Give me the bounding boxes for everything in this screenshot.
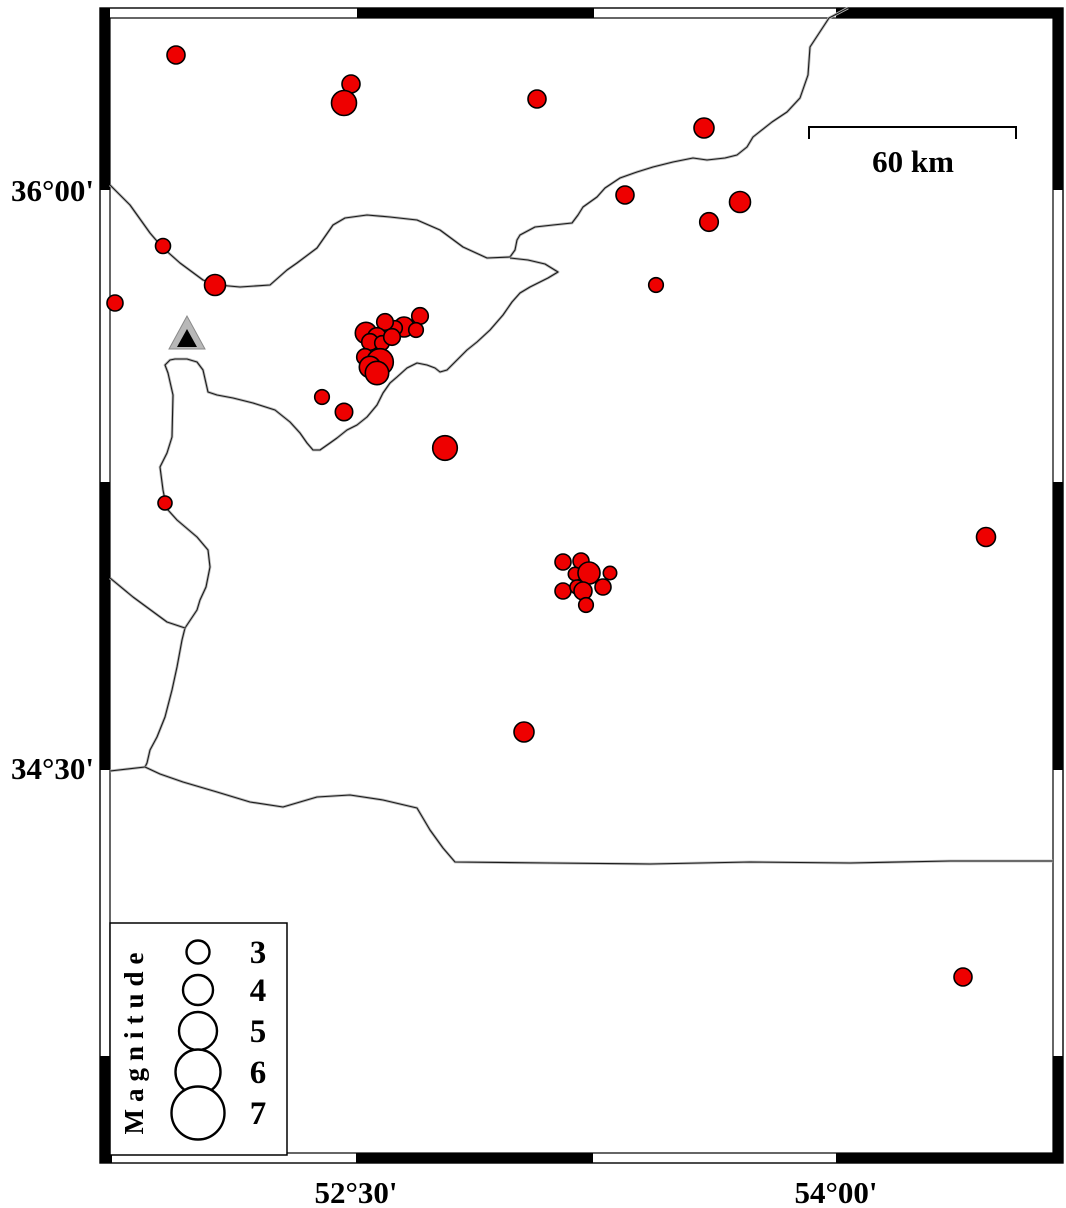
earthquake-marker	[603, 566, 616, 579]
frame-segment-left	[100, 8, 110, 190]
legend-circle-mag-4	[183, 975, 213, 1005]
earthquake-marker	[700, 213, 719, 232]
legend-value-mag-3: 3	[250, 935, 267, 971]
earthquake-marker	[579, 598, 594, 613]
earthquake-marker	[156, 239, 171, 254]
frame-segment-top	[836, 8, 1063, 18]
frame-segment-right	[1053, 482, 1063, 770]
earthquake-marker	[694, 118, 714, 138]
frame-segment-top	[357, 8, 594, 18]
earthquake-marker	[595, 579, 611, 595]
seismicity-map: 60 km Magnitude 34567 36°00'34°30'52°30'…	[0, 0, 1066, 1208]
frame-segment-right	[1053, 1056, 1063, 1163]
earthquake-marker	[384, 329, 401, 346]
earthquake-marker	[315, 390, 330, 405]
earthquake-marker	[332, 91, 357, 116]
earthquake-marker	[335, 403, 352, 420]
earthquake-marker	[514, 722, 534, 742]
earthquake-marker	[409, 323, 424, 338]
legend-title: Magnitude	[119, 945, 149, 1134]
earthquake-marker	[365, 361, 388, 384]
earthquake-marker	[107, 295, 123, 311]
legend-value-mag-4: 4	[250, 973, 267, 1009]
earthquake-marker	[412, 308, 429, 325]
longitude-label: 54°00'	[794, 1175, 877, 1208]
earthquake-marker	[616, 186, 634, 204]
earthquake-marker	[205, 275, 226, 296]
earthquake-marker	[433, 436, 458, 461]
earthquake-marker	[730, 192, 751, 213]
latitude-label: 36°00'	[11, 173, 94, 208]
legend-value-mag-5: 5	[250, 1014, 267, 1050]
frame-segment-bottom	[356, 1153, 593, 1163]
longitude-label: 52°30'	[314, 1175, 397, 1208]
legend-value-mag-7: 7	[250, 1096, 267, 1132]
frame-segment-left	[100, 482, 110, 770]
earthquake-marker	[158, 496, 172, 510]
legend-circle-mag-7	[172, 1087, 225, 1140]
frame-segment-left	[100, 1056, 110, 1163]
scale-bar-label: 60 km	[872, 144, 954, 179]
frame-segment-bottom	[836, 1153, 1063, 1163]
legend-circle-mag-3	[187, 941, 210, 964]
legend-value-mag-6: 6	[250, 1055, 267, 1091]
earthquake-marker	[977, 528, 996, 547]
earthquake-marker	[574, 582, 592, 600]
earthquake-marker	[649, 278, 664, 293]
earthquake-marker	[167, 46, 185, 64]
latitude-label: 34°30'	[11, 751, 94, 786]
magnitude-legend: Magnitude 34567	[110, 923, 287, 1155]
legend-circle-mag-5	[179, 1012, 217, 1050]
seismicity-map-page: 60 km Magnitude 34567 36°00'34°30'52°30'…	[0, 0, 1066, 1208]
earthquake-marker	[555, 583, 571, 599]
frame-segment-right	[1053, 8, 1063, 190]
earthquake-marker	[954, 968, 972, 986]
earthquake-marker	[555, 554, 571, 570]
earthquake-marker	[528, 90, 546, 108]
